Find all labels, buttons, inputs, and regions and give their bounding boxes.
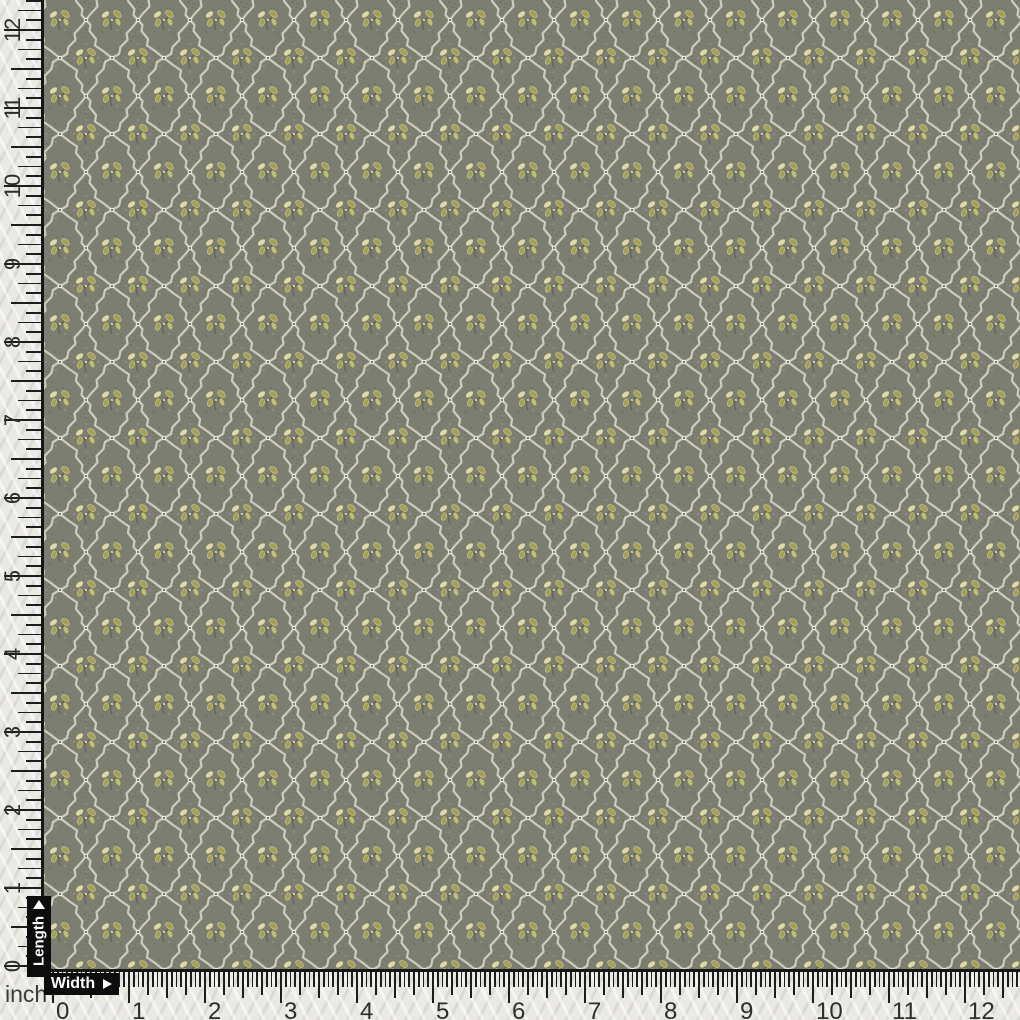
left-ruler-tick: [18, 556, 41, 558]
bottom-ruler-tick: [589, 972, 591, 987]
bottom-ruler-tick: [703, 972, 705, 987]
bottom-ruler-tick: [513, 972, 515, 987]
bottom-ruler-edge-line: [41, 969, 1020, 972]
bottom-ruler-number: 9: [740, 1000, 753, 1020]
bottom-ruler-tick: [883, 972, 885, 987]
bottom-ruler-tick: [579, 972, 581, 987]
left-ruler-tick: [26, 721, 41, 723]
bottom-ruler-tick: [176, 972, 178, 987]
bottom-ruler-tick: [351, 972, 353, 987]
bottom-ruler-tick: [171, 972, 173, 987]
bottom-ruler-tick: [617, 972, 619, 987]
bottom-ruler-tick: [256, 972, 258, 987]
bottom-ruler-tick: [209, 972, 211, 987]
bottom-ruler-tick: [1002, 972, 1004, 998]
left-ruler-tick: [18, 673, 41, 675]
left-ruler-tick: [18, 634, 41, 636]
left-ruler-number: 7: [2, 414, 24, 426]
left-ruler-number: 8: [2, 336, 24, 348]
bottom-ruler-tick: [489, 972, 491, 995]
bottom-ruler-tick: [974, 972, 976, 987]
bottom-ruler-tick: [385, 972, 387, 987]
bottom-ruler-tick: [304, 972, 306, 987]
left-ruler-number: 12: [2, 18, 24, 42]
left-ruler-tick: [26, 78, 41, 80]
bottom-ruler-tick: [404, 972, 406, 987]
left-ruler-tick: [26, 370, 41, 372]
bottom-ruler-tick: [689, 972, 691, 987]
left-ruler-tick: [18, 517, 41, 519]
left-ruler-tick: [26, 409, 41, 411]
bottom-ruler-tick: [427, 972, 429, 987]
bottom-ruler-tick: [608, 972, 610, 987]
bottom-ruler-tick: [746, 972, 748, 987]
left-ruler-tick: [26, 390, 41, 392]
bottom-ruler-tick: [361, 972, 363, 987]
bottom-ruler-tick: [727, 972, 729, 987]
bottom-ruler-number: 8: [664, 1000, 677, 1020]
left-ruler-number: 1: [2, 882, 24, 894]
width-tag: Width: [44, 973, 119, 995]
bottom-ruler-tick: [461, 972, 463, 987]
bottom-ruler-tick: [413, 972, 415, 995]
left-ruler-tick: [18, 712, 41, 714]
bottom-ruler-tick: [1012, 972, 1014, 987]
bottom-ruler-tick: [157, 972, 159, 987]
left-ruler-tick: [11, 146, 41, 148]
left-ruler-tick: [26, 448, 41, 450]
bottom-ruler-tick: [741, 972, 743, 987]
up-arrow-icon: [33, 900, 45, 909]
bottom-ruler-tick: [161, 972, 163, 987]
bottom-ruler-tick: [670, 972, 672, 987]
bottom-ruler-tick: [636, 972, 638, 987]
left-ruler-tick: [11, 614, 41, 616]
left-ruler-tick: [26, 702, 41, 704]
left-ruler-tick: [18, 790, 41, 792]
bottom-ruler-tick: [993, 972, 995, 987]
left-ruler-tick: [26, 838, 41, 840]
left-ruler-tick: [11, 302, 41, 304]
left-ruler-tick: [18, 10, 41, 12]
inch-unit-label: inch: [5, 983, 47, 1006]
left-ruler-tick: [11, 536, 41, 538]
left-ruler-tick: [26, 253, 41, 255]
bottom-ruler-tick: [152, 972, 154, 987]
bottom-ruler-tick: [912, 972, 914, 987]
left-ruler-edge-line: [41, 0, 44, 972]
left-ruler-tick: [26, 858, 41, 860]
left-ruler-tick: [26, 799, 41, 801]
bottom-ruler-tick: [660, 972, 663, 1003]
bottom-ruler-tick: [627, 972, 629, 987]
bottom-ruler-tick: [285, 972, 287, 987]
page: 0123456789101112 0123456789101112 Length…: [0, 0, 1020, 1020]
bottom-ruler-tick: [679, 972, 681, 995]
bottom-ruler-tick: [860, 972, 862, 987]
bottom-ruler-tick: [389, 972, 391, 987]
bottom-ruler-tick: [921, 972, 923, 987]
bottom-ruler-tick: [603, 972, 605, 995]
bottom-ruler-tick: [869, 972, 871, 995]
bottom-ruler-tick: [437, 972, 439, 987]
bottom-ruler-tick: [622, 972, 624, 998]
left-ruler-tick: [26, 780, 41, 782]
bottom-ruler-tick: [917, 972, 919, 987]
bottom-ruler-tick: [503, 972, 505, 987]
bottom-ruler-tick: [793, 972, 795, 995]
bottom-ruler-tick: [693, 972, 695, 987]
bottom-ruler-tick: [988, 972, 990, 987]
left-ruler-tick: [26, 546, 41, 548]
bottom-ruler-tick: [347, 972, 349, 987]
bottom-ruler-tick: [755, 972, 757, 995]
bottom-ruler-tick: [337, 972, 339, 995]
bottom-ruler-tick: [328, 972, 330, 987]
bottom-ruler-tick: [195, 972, 197, 987]
bottom-ruler-tick: [655, 972, 657, 987]
left-ruler-tick: [26, 663, 41, 665]
bottom-ruler-tick: [380, 972, 382, 987]
bottom-ruler-tick: [831, 972, 833, 995]
bottom-ruler-tick: [983, 972, 985, 995]
bottom-ruler-tick: [570, 972, 572, 987]
bottom-ruler-number: 2: [208, 1000, 221, 1020]
left-ruler-number: 0: [2, 960, 24, 972]
fabric-pattern-svg: [44, 0, 1020, 970]
bottom-ruler-tick: [850, 972, 852, 998]
bottom-ruler-tick: [841, 972, 843, 987]
bottom-ruler-tick: [546, 972, 548, 998]
left-ruler-tick: [26, 351, 41, 353]
left-ruler-tick: [18, 166, 41, 168]
bottom-ruler-tick: [560, 972, 562, 987]
bottom-ruler-tick: [902, 972, 904, 987]
left-ruler-tick: [26, 877, 41, 879]
bottom-ruler-tick: [446, 972, 448, 987]
bottom-ruler-tick: [494, 972, 496, 987]
bottom-ruler-tick: [527, 972, 529, 995]
bottom-ruler-tick: [817, 972, 819, 987]
left-ruler-tick: [26, 97, 41, 99]
left-ruler-number: 10: [2, 174, 24, 198]
bottom-ruler-tick: [128, 972, 131, 1003]
bottom-ruler-tick: [551, 972, 553, 987]
bottom-ruler-number: 11: [892, 1000, 917, 1020]
bottom-ruler-tick: [879, 972, 881, 987]
left-ruler-tick: [18, 478, 41, 480]
bottom-ruler-tick: [318, 972, 320, 998]
bottom-ruler-tick: [936, 972, 938, 987]
bottom-ruler: 0123456789101112: [0, 972, 1020, 1020]
bottom-ruler-tick: [717, 972, 719, 995]
left-ruler-tick: [11, 692, 41, 694]
bottom-ruler-number: 1: [132, 1000, 145, 1020]
bottom-ruler-tick: [309, 972, 311, 987]
left-ruler-tick: [26, 39, 41, 41]
bottom-ruler-tick: [508, 972, 511, 1003]
bottom-ruler-tick: [750, 972, 752, 987]
left-ruler-tick: [26, 507, 41, 509]
left-ruler-number: 9: [2, 258, 24, 270]
left-ruler-tick: [26, 819, 41, 821]
bottom-ruler-tick: [518, 972, 520, 987]
bottom-ruler-tick: [432, 972, 435, 1003]
left-ruler-tick: [26, 468, 41, 470]
bottom-ruler-tick: [575, 972, 577, 987]
left-ruler-tick: [18, 361, 41, 363]
bottom-ruler-tick: [233, 972, 235, 987]
left-ruler-tick: [26, 175, 41, 177]
left-ruler-number: 6: [2, 492, 24, 504]
bottom-ruler-tick: [641, 972, 643, 995]
bottom-ruler-tick: [280, 972, 283, 1003]
bottom-ruler-tick: [133, 972, 135, 987]
left-ruler-tick: [11, 848, 41, 850]
left-ruler-tick: [26, 273, 41, 275]
bottom-ruler-tick: [228, 972, 230, 987]
left-ruler-tick: [18, 751, 41, 753]
bottom-ruler-tick: [803, 972, 805, 987]
left-ruler-number: 4: [2, 648, 24, 660]
length-tag: Length: [27, 896, 51, 977]
bottom-ruler-tick: [456, 972, 458, 987]
bottom-ruler-tick: [788, 972, 790, 987]
bottom-ruler-tick: [299, 972, 301, 995]
bottom-ruler-tick: [313, 972, 315, 987]
bottom-ruler-number: 7: [588, 1000, 601, 1020]
bottom-ruler-tick: [242, 972, 244, 998]
bottom-ruler-tick: [874, 972, 876, 987]
bottom-ruler-number: 6: [512, 1000, 525, 1020]
left-ruler-tick: [11, 458, 41, 460]
bottom-ruler-tick: [926, 972, 928, 998]
bottom-ruler-tick: [712, 972, 714, 987]
bottom-ruler-tick: [969, 972, 971, 987]
bottom-ruler-tick: [484, 972, 486, 987]
bottom-ruler-tick: [845, 972, 847, 987]
left-ruler-tick: [18, 322, 41, 324]
bottom-ruler-tick: [185, 972, 187, 995]
bottom-ruler-tick: [674, 972, 676, 987]
left-ruler-tick: [26, 643, 41, 645]
bottom-ruler-tick: [1007, 972, 1009, 987]
bottom-ruler-tick: [223, 972, 225, 995]
bottom-ruler-tick: [584, 972, 587, 1003]
bottom-ruler-tick: [142, 972, 144, 987]
bottom-ruler-tick: [598, 972, 600, 987]
bottom-ruler-tick: [252, 972, 254, 987]
bottom-ruler-tick: [394, 972, 396, 998]
left-ruler-tick: [26, 585, 41, 587]
left-ruler-tick: [26, 214, 41, 216]
bottom-ruler-tick: [945, 972, 947, 995]
bottom-ruler-number: 4: [360, 1000, 373, 1020]
bottom-ruler-tick: [541, 972, 543, 987]
left-ruler-tick: [26, 117, 41, 119]
bottom-ruler-tick: [807, 972, 809, 987]
left-ruler-tick: [26, 312, 41, 314]
bottom-ruler-tick: [997, 972, 999, 987]
bottom-ruler-tick: [470, 972, 472, 998]
left-ruler-number: 3: [2, 726, 24, 738]
bottom-ruler-tick: [931, 972, 933, 987]
bottom-ruler-tick: [522, 972, 524, 987]
bottom-ruler-tick: [708, 972, 710, 987]
left-ruler-tick: [18, 595, 41, 597]
bottom-ruler-tick: [147, 972, 149, 995]
bottom-ruler-tick: [290, 972, 292, 987]
left-ruler-tick: [26, 604, 41, 606]
left-ruler-tick: [18, 205, 41, 207]
left-ruler-tick: [18, 439, 41, 441]
length-tag-label: Length: [31, 916, 48, 966]
bottom-ruler-number: 10: [816, 1000, 843, 1020]
bottom-ruler-tick: [180, 972, 182, 987]
bottom-ruler-tick: [907, 972, 909, 995]
bottom-ruler-tick: [812, 972, 815, 1003]
bottom-ruler-tick: [978, 972, 980, 987]
bottom-ruler-number: 5: [436, 1000, 449, 1020]
width-tag-label: Width: [51, 975, 95, 993]
bottom-ruler-tick: [665, 972, 667, 987]
bottom-ruler-tick: [556, 972, 558, 987]
bottom-ruler-tick: [366, 972, 368, 987]
bottom-ruler-tick: [199, 972, 201, 987]
bottom-ruler-tick: [769, 972, 771, 987]
bottom-ruler-tick: [722, 972, 724, 987]
left-ruler-tick: [18, 88, 41, 90]
bottom-ruler-tick: [123, 972, 125, 987]
bottom-ruler-tick: [731, 972, 733, 987]
bottom-ruler-tick: [893, 972, 895, 987]
bottom-ruler-tick: [375, 972, 377, 995]
bottom-ruler-tick: [964, 972, 967, 1003]
left-ruler-tick: [18, 400, 41, 402]
left-ruler-tick: [26, 760, 41, 762]
bottom-ruler-tick: [408, 972, 410, 987]
bottom-ruler-tick: [399, 972, 401, 987]
bottom-ruler-tick: [499, 972, 501, 987]
bottom-ruler-tick: [237, 972, 239, 987]
left-ruler-tick: [26, 156, 41, 158]
bottom-ruler-tick: [465, 972, 467, 987]
bottom-ruler-number: 3: [284, 1000, 297, 1020]
left-ruler-tick: [26, 526, 41, 528]
left-ruler-number: 5: [2, 570, 24, 582]
left-ruler-tick: [26, 234, 41, 236]
bottom-ruler-tick: [760, 972, 762, 987]
bottom-ruler-tick: [442, 972, 444, 987]
left-ruler-tick: [11, 770, 41, 772]
left-ruler-tick: [18, 829, 41, 831]
bottom-ruler-tick: [166, 972, 168, 998]
bottom-ruler-tick: [138, 972, 140, 987]
bottom-ruler-tick: [594, 972, 596, 987]
bottom-ruler-tick: [332, 972, 334, 987]
bottom-ruler-tick: [190, 972, 192, 987]
bottom-ruler-tick: [826, 972, 828, 987]
left-ruler-tick: [26, 58, 41, 60]
left-ruler-tick: [26, 682, 41, 684]
bottom-ruler-tick: [613, 972, 615, 987]
bottom-ruler-tick: [950, 972, 952, 987]
bottom-ruler-tick: [266, 972, 268, 987]
left-ruler-tick: [26, 565, 41, 567]
bottom-ruler-tick: [218, 972, 220, 987]
bottom-ruler-tick: [475, 972, 477, 987]
bottom-ruler-tick: [898, 972, 900, 987]
bottom-ruler-tick: [214, 972, 216, 987]
bottom-ruler-tick: [765, 972, 767, 987]
left-ruler-tick: [18, 49, 41, 51]
bottom-ruler-tick: [651, 972, 653, 987]
left-ruler-tick: [26, 331, 41, 333]
bottom-ruler-tick: [356, 972, 359, 1003]
left-ruler-tick: [18, 244, 41, 246]
bottom-ruler-tick: [836, 972, 838, 987]
bottom-ruler-tick: [261, 972, 263, 995]
left-ruler-tick: [26, 624, 41, 626]
bottom-ruler-tick: [204, 972, 207, 1003]
bottom-ruler-tick: [451, 972, 453, 995]
left-ruler-tick: [26, 292, 41, 294]
bottom-ruler-tick: [275, 972, 277, 987]
bottom-ruler-tick: [779, 972, 781, 987]
bottom-ruler-tick: [855, 972, 857, 987]
bottom-ruler-tick: [798, 972, 800, 987]
fabric-swatch: [44, 0, 1020, 970]
bottom-ruler-tick: [698, 972, 700, 998]
bottom-ruler-tick: [784, 972, 786, 987]
bottom-ruler-tick: [418, 972, 420, 987]
bottom-ruler-tick: [774, 972, 776, 998]
left-ruler-tick: [26, 19, 41, 21]
left-ruler-tick: [11, 224, 41, 226]
bottom-ruler-tick: [565, 972, 567, 995]
left-ruler-number: 2: [2, 804, 24, 816]
bottom-ruler-tick: [342, 972, 344, 987]
bottom-ruler-tick: [480, 972, 482, 987]
bottom-ruler-tick: [864, 972, 866, 987]
left-ruler-tick: [26, 487, 41, 489]
bottom-ruler-tick: [888, 972, 891, 1003]
bottom-ruler-tick: [537, 972, 539, 987]
bottom-ruler-tick: [247, 972, 249, 987]
left-ruler-tick: [11, 68, 41, 70]
bottom-ruler-tick: [822, 972, 824, 987]
bottom-ruler-number: 0: [56, 1000, 69, 1020]
left-ruler-tick: [18, 283, 41, 285]
bottom-ruler-tick: [323, 972, 325, 987]
bottom-ruler-tick: [959, 972, 961, 987]
bottom-ruler-tick: [532, 972, 534, 987]
left-ruler-tick: [26, 741, 41, 743]
bottom-ruler-tick: [940, 972, 942, 987]
left-ruler-tick: [26, 0, 41, 2]
bottom-ruler-tick: [646, 972, 648, 987]
bottom-ruler-tick: [736, 972, 739, 1003]
left-ruler-tick: [26, 195, 41, 197]
left-ruler-tick: [18, 127, 41, 129]
right-arrow-icon: [103, 979, 112, 989]
bottom-ruler-number: 12: [968, 1000, 995, 1020]
left-ruler: 0123456789101112: [0, 0, 41, 972]
bottom-ruler-tick: [370, 972, 372, 987]
bottom-ruler-tick: [955, 972, 957, 987]
left-ruler-tick: [18, 868, 41, 870]
bottom-ruler-tick: [294, 972, 296, 987]
